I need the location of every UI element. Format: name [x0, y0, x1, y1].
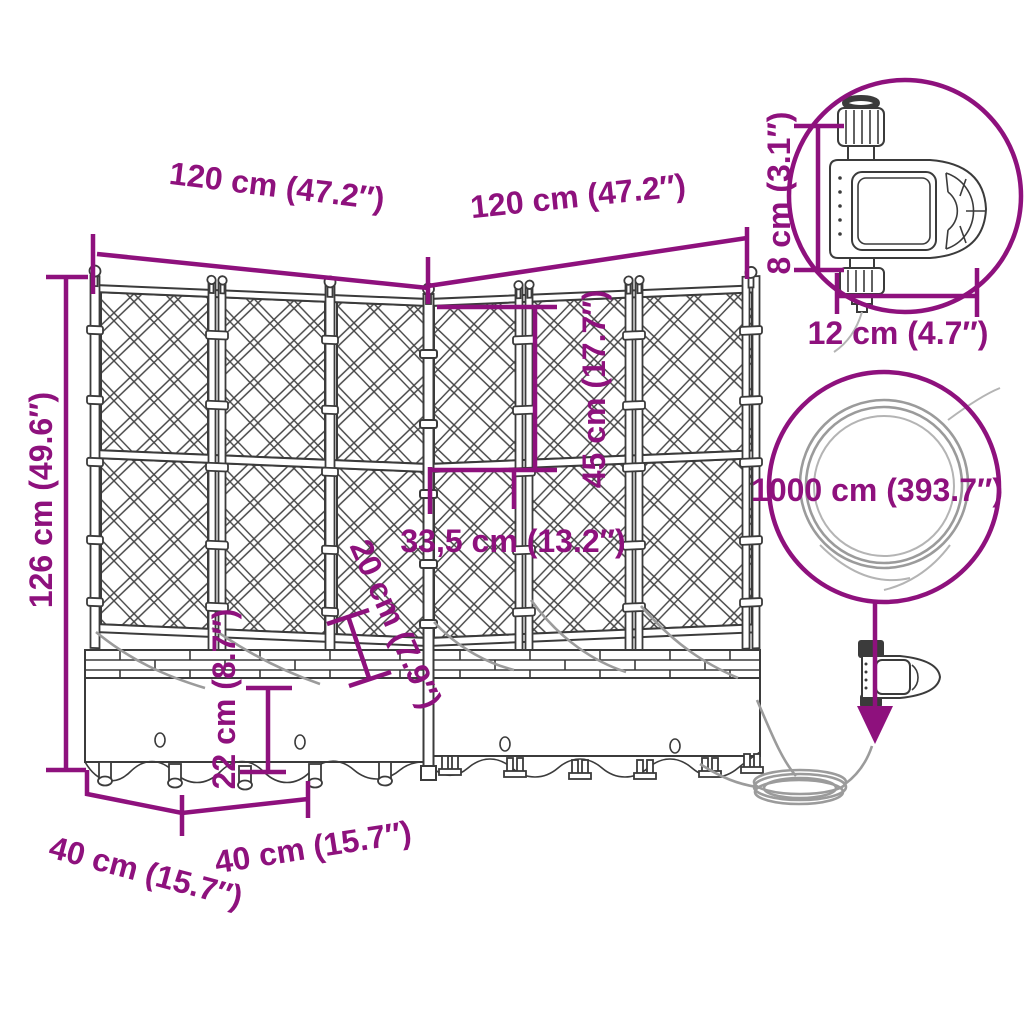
dim-planter-height-label: 22 cm (8.7″): [206, 609, 242, 790]
timer-on-hose: [858, 640, 940, 716]
dim-height-total-label: 126 cm (49.6″): [23, 392, 59, 608]
dim-width-lines: [97, 238, 747, 288]
dim-panel-width-label: 33,5 cm (13.2″): [400, 523, 625, 559]
dim-width-left-label: 120 cm (47.2″): [167, 155, 386, 217]
diagram-canvas: 120 cm (47.2″) 120 cm (47.2″) 126 cm (49…: [0, 0, 1024, 1024]
dim-timer-width-label: 12 cm (4.7″): [808, 315, 989, 351]
dim-depth-right-label: 40 cm (15.7″): [212, 814, 414, 881]
planter-box-right: [424, 650, 763, 779]
outlet-hose: [757, 700, 796, 776]
down-arrow-icon: [857, 706, 893, 744]
dim-width-right-label: 120 cm (47.2″): [469, 167, 688, 225]
dim-trellis-section-label: 45 cm (17.7″): [576, 290, 612, 489]
water-timer-detail: [789, 80, 1021, 352]
planter-box-left: [85, 650, 433, 790]
dimension-diagram: 120 cm (47.2″) 120 cm (47.2″) 126 cm (49…: [0, 0, 1024, 1024]
dim-hose-length-label: 1000 cm (393.7″): [751, 472, 1003, 508]
dim-timer-height-label: 8 cm (3.1″): [761, 112, 797, 275]
